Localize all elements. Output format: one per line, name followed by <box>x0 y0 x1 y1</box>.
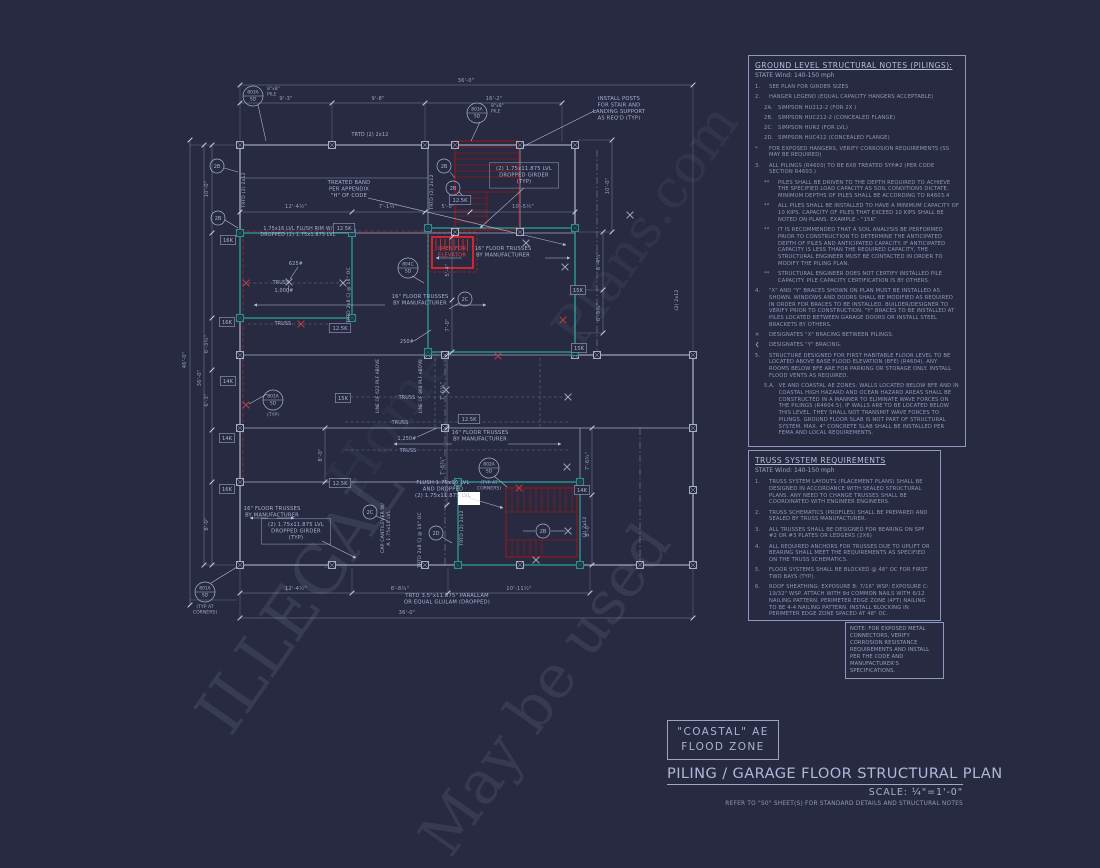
plan-label: 1.75x16 LVL FLUSH RIM W/DROPPED (2) 1.75… <box>260 226 335 238</box>
plan-label: TRTD (2) 2x12 <box>351 132 389 138</box>
dimension-text: 12'-4½" <box>285 585 307 592</box>
circle-leader <box>224 168 238 172</box>
note-item-number: 1. <box>755 479 765 506</box>
note-item: 2.HANGER LEGEND (EQUAL CAPACITY HANGERS … <box>755 94 959 101</box>
plan-label: CAP CANTILEVER W/A 1.75x16 LVL <box>380 503 392 553</box>
note-item-number: 2. <box>755 510 765 524</box>
note-item: 2.TRUSS SCHEMATICS (PROFILES) SHALL BE P… <box>755 510 934 524</box>
brace-x-mark <box>627 212 634 219</box>
detail-circle-label: SD <box>202 593 209 599</box>
sheet-scale: SCALE: ¼"=1'-0" <box>667 787 963 798</box>
note-item: *FOR EXPOSED HANGERS, VERIFY CORROSION R… <box>755 146 959 160</box>
exposed-metal-note: NOTE: FOR EXPOSED METAL CONNECTORS, VERI… <box>845 622 944 679</box>
plan-label: TRTD 2x8 CJ @ 16" OC <box>417 512 423 569</box>
dimension-text: 9'-8" <box>371 96 384 102</box>
detail-circle-label: 2B <box>540 529 547 535</box>
load-leader <box>417 428 437 437</box>
dimension-text: 10'-0" <box>605 178 611 195</box>
capacity-badge-label: 15K <box>338 396 349 402</box>
plan-label: TRUSS <box>398 395 416 401</box>
note-item-text: DESIGNATES "X" BRACING BETWEEN PILINGS. <box>769 332 894 339</box>
dimension-text: 9'-3" <box>279 96 292 102</box>
detail-circle-caption: CORNERS) <box>193 610 217 616</box>
ground-notes-title: GROUND LEVEL STRUCTURAL NOTES (PILINGS): <box>755 61 959 70</box>
dimension-text: 8'-0" <box>585 523 591 536</box>
circle-leader <box>225 220 238 228</box>
brace-x-mark <box>564 464 571 471</box>
plan-label: 16" FLOOR TRUSSESBY MANUFACTURER <box>244 506 301 519</box>
capacity-badge-label: 12.5K <box>337 226 353 232</box>
note-item: 5.A.VE AND COASTAL AE ZONES: WALLS LOCAT… <box>764 383 959 437</box>
detail-circle-label: SD <box>250 97 257 103</box>
dimension-text: 7'-6¾" <box>440 382 446 401</box>
note-item-text: ALL REQUIRED ANCHORS FOR TRUSSES DUE TO … <box>769 544 934 564</box>
install-posts-leader <box>520 110 596 148</box>
flood-zone-line2: FLOOD ZONE <box>681 740 764 755</box>
note-item-text: FLOOR SYSTEMS SHALL BE BLOCKED @ 48" OC … <box>769 567 934 581</box>
note-item-text: TRUSS SYSTEM LAYOUTS (PLACEMENT PLANS) S… <box>769 479 934 506</box>
note-item: 4."X" AND "Y" BRACES SHOWN ON PLAN MUST … <box>755 288 959 329</box>
capacity-badge-label: 12.5K <box>453 198 469 204</box>
note-item-number: 2C. <box>764 125 774 132</box>
note-item-text: "X" AND "Y" BRACES SHOWN ON PLAN MUST BE… <box>769 288 959 329</box>
sheet-title: PILING / GARAGE FLOOR STRUCTURAL PLAN <box>667 765 963 785</box>
note-item-text: ALL TRUSSES SHALL BE DESIGNED FOR BEARIN… <box>769 527 934 541</box>
note-item-text: PILES SHALL BE DRIVEN TO THE DEPTH REQUI… <box>778 180 959 200</box>
note-item-text: HANGER LEGEND (EQUAL CAPACITY HANGERS AC… <box>769 94 933 101</box>
plan-label: 16" FLOOR TRUSSESBY MANUFACTURER <box>452 430 509 443</box>
dimension-text: 46'-0" <box>182 352 188 369</box>
circle-leader <box>412 276 424 283</box>
girder-leader <box>322 541 356 558</box>
dimension-text: 36'-0" <box>399 610 416 616</box>
capacity-badge-label: 16K <box>223 238 234 244</box>
ground-level-notes-panel: GROUND LEVEL STRUCTURAL NOTES (PILINGS):… <box>748 55 966 447</box>
flood-zone-line1: "COASTAL" AE <box>677 725 769 740</box>
detail-circle-label: 803A <box>247 90 258 96</box>
detail-circle-label: 2C <box>462 297 469 303</box>
note-item-text: STRUCTURAL ENGINEER DOES NOT CERTIFY INS… <box>778 271 959 285</box>
plan-label: INSTALL POSTSFOR STAIR ANDLANDING SUPPOR… <box>593 96 646 122</box>
detail-circle-caption: 8"x8" <box>491 103 504 109</box>
plan-label: 1,000# <box>275 288 294 294</box>
dimension-text: 6'-3" <box>204 393 210 406</box>
plan-label: TRTD 3.5"x11.875" PARALLAMOR EQUAL GLULA… <box>404 593 490 606</box>
plan-label: 1,250# <box>398 436 417 442</box>
generated-annotations: 16K16K14K14K16K12.5K12.5K15K12.5K12.5K12… <box>182 78 697 620</box>
detail-circle-label: 2D <box>432 531 439 537</box>
note-item-text: SEE PLAN FOR GIRDER SIZES <box>769 84 848 91</box>
brace-x-mark <box>560 317 567 324</box>
note-item-number: * <box>755 146 765 160</box>
note-item-text: SIMPSON HUC412 (CONCEALED FLANGE) <box>778 135 890 142</box>
plan-label: OPEN FORELEVATOR <box>438 246 466 259</box>
ground-notes-list: 1.SEE PLAN FOR GIRDER SIZES2.HANGER LEGE… <box>755 84 959 437</box>
plan-label: 250# <box>400 339 414 345</box>
note-item: 5.STRUCTURE DESIGNED FOR FIRST HABITABLE… <box>755 353 959 380</box>
circle-leader <box>449 303 459 309</box>
plan-label: TRTD (2) 2x12 <box>459 510 465 547</box>
dimension-text: 36'-0" <box>458 78 475 84</box>
capacity-badge-label: 14K <box>223 379 234 385</box>
circle-leader <box>450 172 455 178</box>
plan-label: 625# <box>289 261 303 267</box>
sheet-refer-note: REFER TO "S0" SHEET(S) FOR STANDARD DETA… <box>667 801 963 807</box>
detail-circle-caption: (TYP AT <box>480 480 497 486</box>
note-item: 3.ALL TRUSSES SHALL BE DESIGNED FOR BEAR… <box>755 527 934 541</box>
note-item-text: FOR EXPOSED HANGERS, VERIFY CORROSION RE… <box>769 146 959 160</box>
plan-label: TRTD 2x8 CJ @ 16" OC <box>346 267 352 324</box>
note-item-text: SIMPSON HUC212-2 (CONCEALED FLANGE) <box>778 115 895 122</box>
note-item-text: STRUCTURE DESIGNED FOR FIRST HABITABLE F… <box>769 353 959 380</box>
detail-circle-label: 2C <box>367 510 374 516</box>
note-item-number: 5. <box>755 353 765 380</box>
circle-leader <box>442 537 452 543</box>
dimension-text: 7'-1¾" <box>379 204 398 210</box>
capacity-badge-label: 12.5K <box>333 326 349 332</box>
detail-circle-label: 2B <box>441 164 448 170</box>
note-item-text: VE AND COASTAL AE ZONES: WALLS LOCATED B… <box>779 383 959 437</box>
truss-subtitle: STATE Wind: 140-150 mph <box>755 467 934 474</box>
plan-label: TRUSS <box>274 321 292 327</box>
capacity-badge-label: 15K <box>574 346 585 352</box>
detail-circle-label: 802A <box>483 462 494 468</box>
detail-circle-label: SD <box>270 401 277 407</box>
note-item-number: ** <box>764 271 774 285</box>
load-leader <box>290 267 298 279</box>
note-item-number: 2B. <box>764 115 774 122</box>
plan-label: TRUSS <box>391 420 409 426</box>
detail-circle-label: 804C <box>402 262 413 268</box>
detail-circle-label: 803A <box>471 107 482 113</box>
detail-circle-caption: PILE <box>491 109 501 115</box>
dimension-text: 10'-5½" <box>512 203 534 210</box>
detail-circle-label: 2B <box>215 216 222 222</box>
note-item: **ALL PILES SHALL BE INSTALLED TO HAVE A… <box>764 203 959 223</box>
plan-label: (2) 1.75x11.875 LVLDROPPED GIRDER(TYP) <box>496 166 552 185</box>
note-item-number: ** <box>764 180 774 200</box>
dimension-text: 16'-2" <box>486 96 503 102</box>
dimension-text: 8'-0" <box>204 517 210 530</box>
plan-label: TRUSS <box>272 280 290 286</box>
detail-circle-label: SD <box>405 269 412 275</box>
note-item-number: 4. <box>755 544 765 564</box>
plan-label: TRTD (2) 2x12 <box>429 174 435 211</box>
note-item: 1.TRUSS SYSTEM LAYOUTS (PLACEMENT PLANS)… <box>755 479 934 506</box>
truss-title: TRUSS SYSTEM REQUIREMENTS <box>755 456 934 465</box>
note-item: 5.FLOOR SYSTEMS SHALL BE BLOCKED @ 48" O… <box>755 567 934 581</box>
stair-bottom-right <box>506 488 577 557</box>
note-item: 2B.SIMPSON HUC212-2 (CONCEALED FLANGE) <box>764 115 959 122</box>
detail-circle-caption: (TYP AT <box>196 604 213 610</box>
plan-label: FLUSH 1.75x16 LVLAND DROPPED(2) 1.75x11.… <box>415 480 471 499</box>
note-item-text: IT IS RECOMMENDED THAT A SOIL ANALYSIS B… <box>778 227 959 268</box>
brace-x-mark <box>562 264 569 271</box>
dimension-text: 8'-0" <box>318 448 324 461</box>
dimension-text: 7'-6¾" <box>585 452 591 471</box>
brace-x-mark <box>243 402 250 409</box>
dimension-text: 36'-0" <box>197 370 203 387</box>
dimension-text: 7'-0" <box>445 318 451 331</box>
brace-x-mark <box>565 528 572 535</box>
capacity-badge-label: 12.5K <box>462 417 478 423</box>
note-item-number: 5.A. <box>764 383 775 437</box>
truss-requirements-panel: TRUSS SYSTEM REQUIREMENTS STATE Wind: 14… <box>748 450 941 621</box>
note-item-number: 2D. <box>764 135 774 142</box>
detail-circle-label: SD <box>486 469 493 475</box>
detail-circle-label: 801A <box>267 394 278 400</box>
dimension-text: 12'-4½" <box>285 203 307 210</box>
capacity-badge-label: 15K <box>573 288 584 294</box>
dimension-text: 5'-0" <box>441 204 454 210</box>
note-item: 6.ROOF SHEATHING: EXPOSURE B: 7/16" WSP;… <box>755 584 934 618</box>
dimension-text: 6'-8¾" <box>391 586 410 592</box>
note-item-text: DESIGNATES "Y" BRACING. <box>769 342 842 349</box>
note-item-number: 6. <box>755 584 765 618</box>
note-item: ✕DESIGNATES "X" BRACING BETWEEN PILINGS. <box>755 332 959 339</box>
note-item: 4.ALL REQUIRED ANCHORS FOR TRUSSES DUE T… <box>755 544 934 564</box>
capacity-badge-label: 14K <box>577 488 588 494</box>
note-item-number: ✕ <box>755 332 765 339</box>
plan-label: LINE OF 868 PLF ABOVE <box>418 359 423 413</box>
detail-circle-label: 2B <box>214 164 221 170</box>
capacity-badge-label: 12.5K <box>333 481 349 487</box>
plan-label: (2) 2x12 <box>674 289 680 310</box>
note-item-number: 3. <box>755 527 765 541</box>
note-item-text: ALL PILINGS (R4603) TO BE 8X8 TREATED SY… <box>769 163 959 177</box>
flood-zone-box: "COASTAL" AE FLOOD ZONE <box>667 720 779 760</box>
plan-label: 16" FLOOR TRUSSESBY MANUFACTURER <box>392 294 449 307</box>
note-item-number: 5. <box>755 567 765 581</box>
detail-circle-caption: 8"x8" <box>267 86 280 92</box>
note-item-text: ALL PILES SHALL BE INSTALLED TO HAVE A M… <box>778 203 959 223</box>
circle-leader <box>471 122 480 141</box>
stair-top-right <box>455 141 519 230</box>
note-item-number: 1. <box>755 84 765 91</box>
brace-x-mark <box>533 557 540 564</box>
dimension-text: 5'-4" <box>445 263 451 276</box>
note-item-number: 4. <box>755 288 765 329</box>
plan-label: TRTD (2) 2x12 <box>241 172 247 209</box>
circle-leader <box>211 567 237 583</box>
note-item-text: TRUSS SCHEMATICS (PROFILES) SHALL BE PRE… <box>769 510 934 524</box>
dimension-text: 6'-3½" <box>203 335 210 354</box>
note-item-number: 2. <box>755 94 765 101</box>
capacity-badge-label: 14K <box>222 436 233 442</box>
capacity-badge-label: 16K <box>222 320 233 326</box>
capacity-badge-label: 16K <box>222 487 233 493</box>
plan-label: TRUSS <box>399 448 417 454</box>
circle-leader <box>258 105 266 141</box>
note-item: 2D.SIMPSON HUC412 (CONCEALED FLANGE) <box>764 135 959 142</box>
detail-circle-caption: PILE <box>267 92 277 98</box>
detail-circle-label: 801A <box>199 586 210 592</box>
note-item: **STRUCTURAL ENGINEER DOES NOT CERTIFY I… <box>764 271 959 285</box>
note-item-number: ** <box>764 227 774 268</box>
note-item-text: SIMPSON HUR2 (FOR LVL) <box>778 125 848 132</box>
detail-circle-label: SD <box>474 114 481 120</box>
note-item: 3.ALL PILINGS (R4603) TO BE 8X8 TREATED … <box>755 163 959 177</box>
note-item-text: ROOF SHEATHING: EXPOSURE B: 7/16" WSP; E… <box>769 584 934 618</box>
brace-x-mark <box>340 280 347 287</box>
dimension-text: 6'-4¼" <box>596 252 602 271</box>
dimension-text: 7'-6¾" <box>440 457 446 476</box>
truss-notes-list: 1.TRUSS SYSTEM LAYOUTS (PLACEMENT PLANS)… <box>755 479 934 618</box>
note-item: **IT IS RECOMMENDED THAT A SOIL ANALYSIS… <box>764 227 959 268</box>
note-item-number: 3. <box>755 163 765 177</box>
dimension-text: 6'-9¾" <box>596 303 602 322</box>
treated-band-leader <box>368 198 566 245</box>
note-item-number: ** <box>764 203 774 223</box>
dimension-text: 10'-11½" <box>506 585 532 592</box>
note-item: **PILES SHALL BE DRIVEN TO THE DEPTH REQ… <box>764 180 959 200</box>
brace-x-mark <box>495 353 502 360</box>
note-item-number: ❮ <box>755 342 765 349</box>
note-item: 2C.SIMPSON HUR2 (FOR LVL) <box>764 125 959 132</box>
note-item-text: SIMPSON HU212-2 (FOR 2X ) <box>778 105 856 112</box>
detail-circle-caption: (TYP) <box>267 412 279 418</box>
note-item-number: 2A. <box>764 105 774 112</box>
detail-circle-caption: CORNERS) <box>477 486 501 492</box>
plan-label: 16" FLOOR TRUSSESBY MANUFACTURER <box>475 246 532 259</box>
note-item: 2A.SIMPSON HU212-2 (FOR 2X ) <box>764 105 959 112</box>
note-item: ❮DESIGNATES "Y" BRACING. <box>755 342 959 349</box>
ground-notes-subtitle: STATE Wind: 140-150 mph <box>755 72 959 79</box>
plan-label: (2) 1.75x11.875 LVLDROPPED GIRDER(TYP) <box>268 522 324 541</box>
note-item: 1.SEE PLAN FOR GIRDER SIZES <box>755 84 959 91</box>
plan-label: TREATED BANDPER APPENDIX"H" OF CODE <box>327 180 371 199</box>
plan-label: LINE OF 622 PLF ABOVE <box>375 359 380 413</box>
dimension-text: 10'-0" <box>204 181 210 198</box>
detail-circle-label: 2B <box>450 186 457 192</box>
